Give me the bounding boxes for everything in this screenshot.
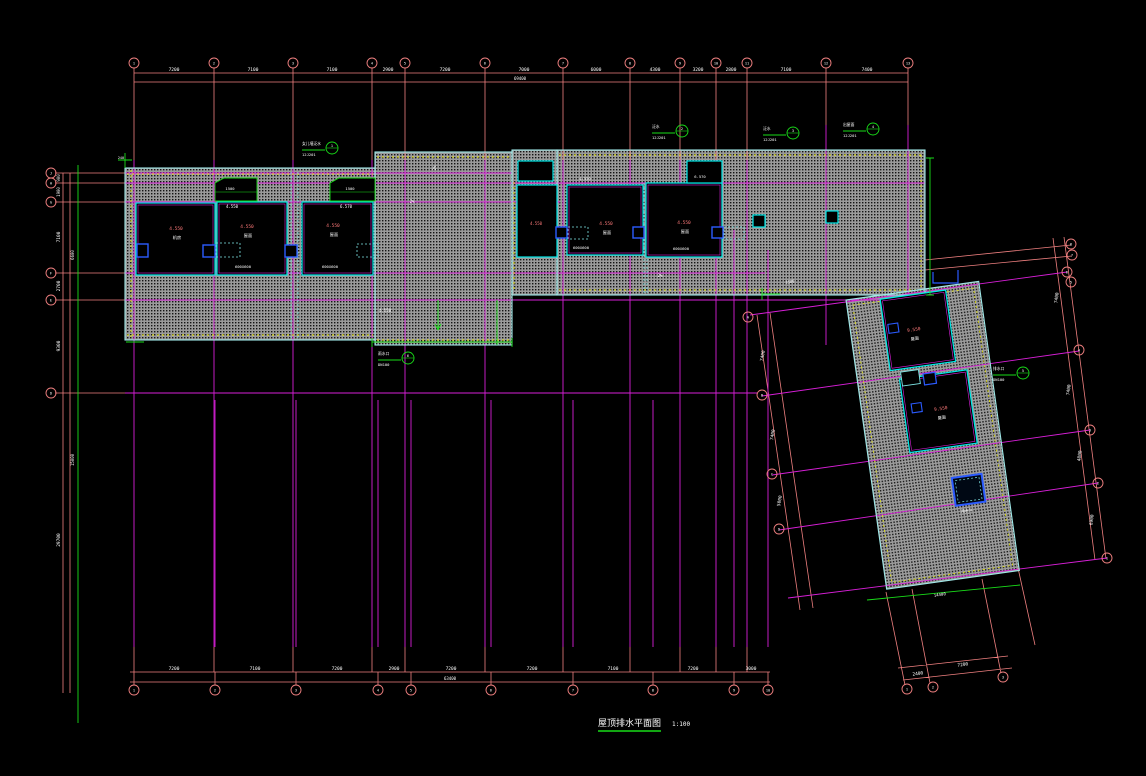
axis-bubble-label: 1 — [133, 61, 135, 65]
callout-note-line1: 女儿墙泛水 — [302, 141, 321, 146]
drain — [556, 227, 567, 238]
axis-bubble-label: 3 — [1089, 428, 1091, 432]
annotation-text: 4.550 — [677, 220, 691, 226]
axis-bubble-label: 6 — [484, 61, 486, 65]
drawing-scale: 1:100 — [672, 721, 690, 728]
annotation-text: 14400 — [933, 591, 946, 598]
drawing-title: 屋顶排水平面图 — [598, 717, 661, 729]
annotation-text: 7000 — [519, 67, 530, 73]
annotation-text: 7100 — [608, 666, 619, 672]
axis-bubble-label: 8 — [629, 61, 631, 65]
axis-bubble-label: 5 — [410, 688, 412, 692]
callout-note-line1: 出屋面 — [843, 122, 855, 127]
annotation-text: 6000 — [591, 67, 602, 73]
notch-mid-top — [687, 161, 722, 183]
annotation-text: 6.570 — [340, 204, 353, 209]
annotation-text: 15000 — [70, 453, 75, 466]
axis-bubble-label: 4 — [377, 688, 379, 692]
axis-bubble-label: G — [50, 200, 52, 204]
notch-link-top — [518, 161, 553, 181]
annotation-text: 7400 — [1065, 384, 1072, 396]
axis-bubble-label: 2 — [214, 688, 216, 692]
annotation-text: 4300 — [650, 67, 661, 73]
callout-note-line1: 泛水 — [763, 126, 771, 131]
axis-bubble-label: 9 — [679, 61, 681, 65]
annotation-text: 4.550 — [579, 176, 591, 181]
drawing-title-block: 屋顶排水平面图 1:100 — [598, 717, 690, 729]
opening-left-2 — [217, 202, 287, 275]
annotation-text: 7200 — [332, 666, 343, 672]
callout-note-line2: 12J201 — [763, 137, 777, 142]
axis-bubble-label: 6 — [490, 688, 492, 692]
axis-bubble-label: H — [50, 181, 52, 185]
annotation-text: 1900 — [56, 187, 61, 197]
axis-bubble-label: B — [761, 393, 763, 397]
axis-bubble-label: F — [50, 271, 52, 275]
axis-bubble-label: J — [50, 171, 52, 175]
axis-bubble-label: 12 — [824, 61, 828, 65]
annotation-text: 7400 — [862, 67, 873, 73]
axis-bubble-label: 9 — [733, 688, 735, 692]
annotation-text: 4.550 — [169, 226, 183, 232]
annotation-text: 6600 — [70, 250, 75, 260]
callout-note-line2: 12J201 — [302, 152, 316, 157]
annotation-text: 2900 — [383, 67, 394, 73]
annotation-text: 4.550 — [326, 223, 340, 229]
axis-bubble-label: 10 — [766, 688, 770, 692]
small-shaft-2 — [826, 211, 838, 223]
annotation-text: 1500 — [345, 186, 355, 191]
callout-number: 6 — [407, 354, 409, 358]
axis-bubble-label: 8 — [652, 688, 654, 692]
axis-bubble-label: C — [771, 472, 773, 476]
annotation-text: 600X600 — [673, 246, 690, 251]
annotation-text: 7200 — [527, 666, 538, 672]
bulkhead-1 — [215, 178, 257, 201]
axis-bubble-label: 7 — [1071, 253, 1073, 257]
junction-blue-bracket — [933, 270, 958, 283]
annotation-text: 7200 — [957, 661, 969, 668]
axis-bubble-label: 7 — [572, 688, 574, 692]
rot-gutter-box — [901, 370, 921, 386]
annotation-text: 7200 — [446, 666, 457, 672]
annotation-text: 2900 — [389, 666, 400, 672]
annotation-text: 3000 — [746, 666, 757, 672]
axis-bubble-label: 13 — [906, 61, 910, 65]
annotation-text: 9300 — [56, 340, 62, 351]
callout-number: 3 — [792, 129, 794, 133]
annotation-text: 4800 — [1076, 450, 1083, 462]
annotation-text: 4.550 — [240, 224, 254, 230]
annotation-text: 2% — [432, 165, 437, 170]
annotation-text: 3200 — [693, 67, 704, 73]
axis-bubble-label: 4 — [1078, 348, 1080, 352]
annotation-text: 7200 — [169, 666, 180, 672]
axis-bubble-label: 1 — [906, 687, 908, 691]
axis-bubble-label: 2 — [932, 685, 934, 689]
annotation-text: 240 — [118, 156, 124, 160]
callout-number: 4 — [872, 125, 874, 129]
annotation-text: 机房 — [173, 234, 181, 241]
axis-bubble-label: 3 — [1002, 675, 1004, 679]
annotation-text: 4.550 — [599, 221, 613, 227]
callout-note-line2: DN100 — [993, 377, 1005, 382]
axis-bubble-label: 3 — [295, 688, 297, 692]
axis-bubble-label: 7 — [562, 61, 564, 65]
rot-drain — [911, 403, 922, 413]
annotation-text: 7400 — [769, 429, 777, 441]
axis-bubble-label: D — [778, 527, 780, 531]
annotation-text: 69400 — [514, 76, 527, 81]
axis-bubble-label: D — [50, 391, 52, 395]
annotation-text: 7100 — [250, 666, 261, 672]
annotation-text: 2700 — [56, 280, 62, 291]
annotation-text: 600X600 — [573, 245, 590, 250]
annotation-text: 600X600 — [322, 264, 339, 269]
drain — [203, 245, 215, 257]
annotation-text: 4.550 — [379, 308, 392, 313]
callout-note-line2: 12J201 — [843, 133, 857, 138]
roof-plan-drawing: 1234567891011121312345678910JHGFED876543… — [0, 0, 1146, 776]
annotation-text: 1500 — [225, 186, 235, 191]
annotation-text: 4.550 — [530, 221, 543, 226]
annotation-text: 2400 — [912, 670, 924, 677]
annotation-text: 2% — [658, 273, 663, 278]
drain — [285, 245, 297, 257]
axis-bubble-label: 10 — [714, 61, 718, 65]
annotation-text: 7200 — [440, 67, 451, 73]
axis-bubble-label: 2 — [1097, 481, 1099, 485]
annotation-text: 7200 — [169, 67, 180, 73]
rot-drain — [888, 323, 899, 333]
callout-note-line1: 雨水口 — [378, 351, 390, 356]
axis-bubble-label: E — [50, 298, 52, 302]
callout-note-line2: DN100 — [378, 362, 390, 367]
axis-bubble-label: 3 — [292, 61, 294, 65]
annotation-text: 7100 — [327, 67, 338, 73]
callout-number: 5 — [1022, 369, 1024, 373]
annotation-text: 2800 — [726, 67, 737, 73]
annotation-text: 7100 — [248, 67, 259, 73]
callout-number: 2 — [681, 127, 683, 131]
small-shaft-1 — [753, 215, 765, 227]
callout-number: 1 — [331, 144, 333, 148]
annotation-text: 4.550 — [226, 204, 239, 209]
annotation-text: 2% — [410, 199, 415, 204]
axis-bubble-label: A — [747, 315, 750, 319]
drain — [137, 244, 148, 257]
callout-note-line1: 排水口 — [993, 366, 1005, 371]
cad-canvas: 1234567891011121312345678910JHGFED876543… — [0, 0, 1146, 776]
annotation-text: 6.570 — [694, 174, 706, 179]
callout-note-line2: 12J201 — [652, 135, 666, 140]
callout-note-line1: 泛水 — [652, 124, 660, 129]
annotation-text: 63400 — [444, 676, 457, 681]
annotation-text: 7100 — [781, 67, 792, 73]
drain — [712, 227, 723, 238]
annotation-text: 29700 — [56, 533, 62, 547]
rot-drain — [923, 372, 936, 385]
annotation-text: 7400 — [1053, 292, 1060, 304]
annotation-text: 900 — [56, 174, 61, 182]
annotation-text: 5000 — [776, 495, 784, 507]
axis-bubble-label: 4 — [371, 61, 373, 65]
annotation-text: 7100 — [56, 231, 62, 242]
annotation-text: 7200 — [688, 666, 699, 672]
axis-bubble-label: 5 — [1070, 280, 1072, 284]
axis-bubble-label: 5 — [404, 61, 406, 65]
axis-bubble-label: 6 — [1066, 270, 1068, 274]
axis-bubble-label: 11 — [745, 61, 749, 65]
axis-bubble-label: 2 — [213, 61, 215, 65]
connector-roof — [375, 152, 512, 345]
drain — [633, 227, 644, 238]
axis-bubble-label: 1 — [1106, 556, 1108, 560]
axis-bubble-label: 8 — [1070, 242, 1072, 246]
axis-bubble-label: 1 — [133, 688, 135, 692]
annotation-text: 7400 — [759, 350, 767, 362]
annotation-text: 600X600 — [235, 264, 252, 269]
